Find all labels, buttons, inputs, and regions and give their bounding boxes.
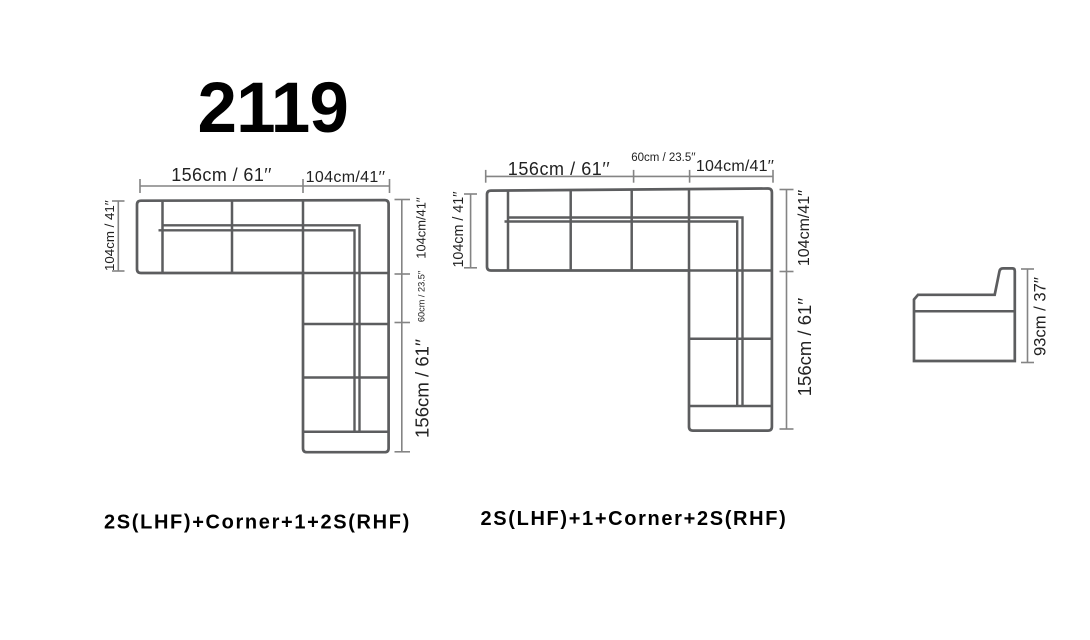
svg-text:2119: 2119 <box>198 69 348 148</box>
svg-text:156cm / 61′′: 156cm / 61′′ <box>794 297 815 396</box>
svg-text:104cm/41′′: 104cm/41′′ <box>796 190 813 266</box>
svg-text:104cm/41′′: 104cm/41′′ <box>696 158 774 175</box>
svg-text:93cm / 37′′: 93cm / 37′′ <box>1031 277 1050 356</box>
svg-text:104cm/41′′: 104cm/41′′ <box>306 169 386 186</box>
svg-text:104cm / 41′′: 104cm / 41′′ <box>102 200 117 271</box>
svg-text:156cm / 61′′: 156cm / 61′′ <box>171 165 272 185</box>
svg-text:104cm / 41′′: 104cm / 41′′ <box>451 191 467 267</box>
svg-text:156cm / 61′′: 156cm / 61′′ <box>412 339 433 438</box>
svg-text:60cm / 23.5′′: 60cm / 23.5′′ <box>417 270 427 322</box>
svg-text:104cm/41′′: 104cm/41′′ <box>414 197 429 259</box>
svg-text:156cm / 61′′: 156cm / 61′′ <box>508 159 610 179</box>
svg-text:60cm / 23.5′′: 60cm / 23.5′′ <box>631 152 695 164</box>
svg-text:2S(LHF)+Corner+1+2S(RHF): 2S(LHF)+Corner+1+2S(RHF) <box>104 511 411 533</box>
svg-text:2S(LHF)+1+Corner+2S(RHF): 2S(LHF)+1+Corner+2S(RHF) <box>481 508 788 530</box>
